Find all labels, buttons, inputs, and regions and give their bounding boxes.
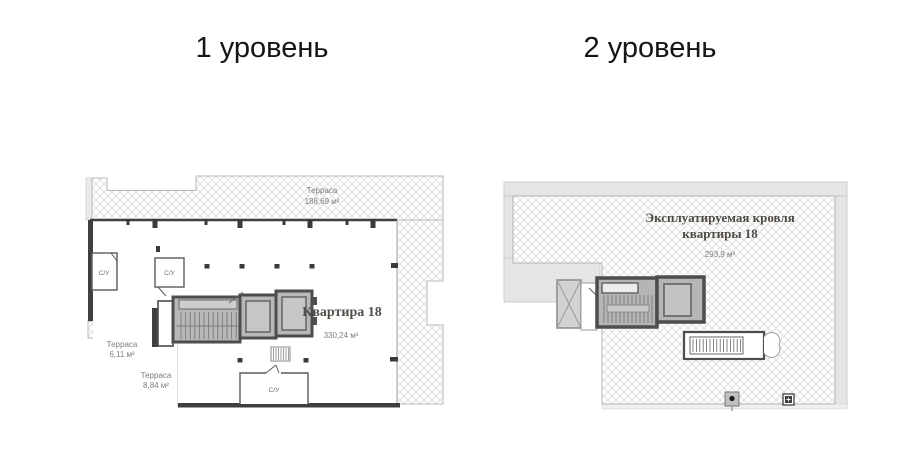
roof-drain-symbol: [783, 394, 794, 405]
apartment-area-value: 330,24 м²: [324, 331, 359, 340]
terrace-top-area-value: 188,69 м²: [305, 197, 340, 206]
staircase: [173, 297, 240, 342]
roof-label-line2: квартиры 18: [682, 226, 758, 241]
door-swing: [764, 333, 780, 358]
apartment-name: Квартира 18: [302, 305, 382, 320]
terrace-top-area: [86, 176, 443, 220]
roof-area-value: 293,9 м²: [705, 250, 736, 259]
bathroom-bottom-label: С/У: [269, 387, 281, 394]
terrace-left-name: Терраса: [107, 340, 138, 349]
level1-title: 1 уровень: [196, 32, 329, 64]
level2-floorplan: Эксплуатируемая кровля квартиры 18 293,9…: [504, 182, 847, 411]
bathroom-left: С/У: [92, 253, 117, 290]
terrace-bottom-area-value: 8,84 м²: [143, 381, 169, 390]
staircase-level2: [597, 278, 657, 327]
elevator-block-level2: [657, 277, 704, 322]
elevator-shaft-1: [240, 295, 276, 338]
elevator-car: [246, 301, 270, 332]
bathroom-middle-label: С/У: [164, 270, 176, 277]
terrace-bottom-label: Терраса 8,84 м²: [141, 371, 172, 390]
terrace-top-name: Терраса: [307, 186, 338, 195]
elevator-car: [664, 284, 691, 316]
terrace-left-label: Терраса 6,11 м²: [107, 340, 138, 359]
elevator-shaft-x: [557, 280, 581, 328]
bathroom-left-label: С/У: [99, 270, 111, 277]
floorplan-canvas: 1 уровень 2 уровень: [0, 0, 900, 450]
terrace-left-area-value: 6,11 м²: [109, 350, 135, 359]
roof-label-line1: Эксплуатируемая кровля: [645, 210, 794, 225]
terrace-right-area: [397, 220, 443, 404]
ladder-icon: [271, 347, 290, 361]
floorplan-page: 1 уровень 2 уровень: [0, 0, 900, 450]
roof-access-stair: [684, 332, 780, 359]
terrace-bottom-name: Терраса: [141, 371, 172, 380]
level2-title: 2 уровень: [584, 32, 717, 64]
ladder-treads: [693, 339, 741, 352]
shaft-duct: [158, 301, 173, 346]
vestibule: [581, 283, 597, 330]
level1-floorplan: С/У С/У С/У: [86, 176, 443, 408]
core-block-level2: [581, 277, 704, 330]
